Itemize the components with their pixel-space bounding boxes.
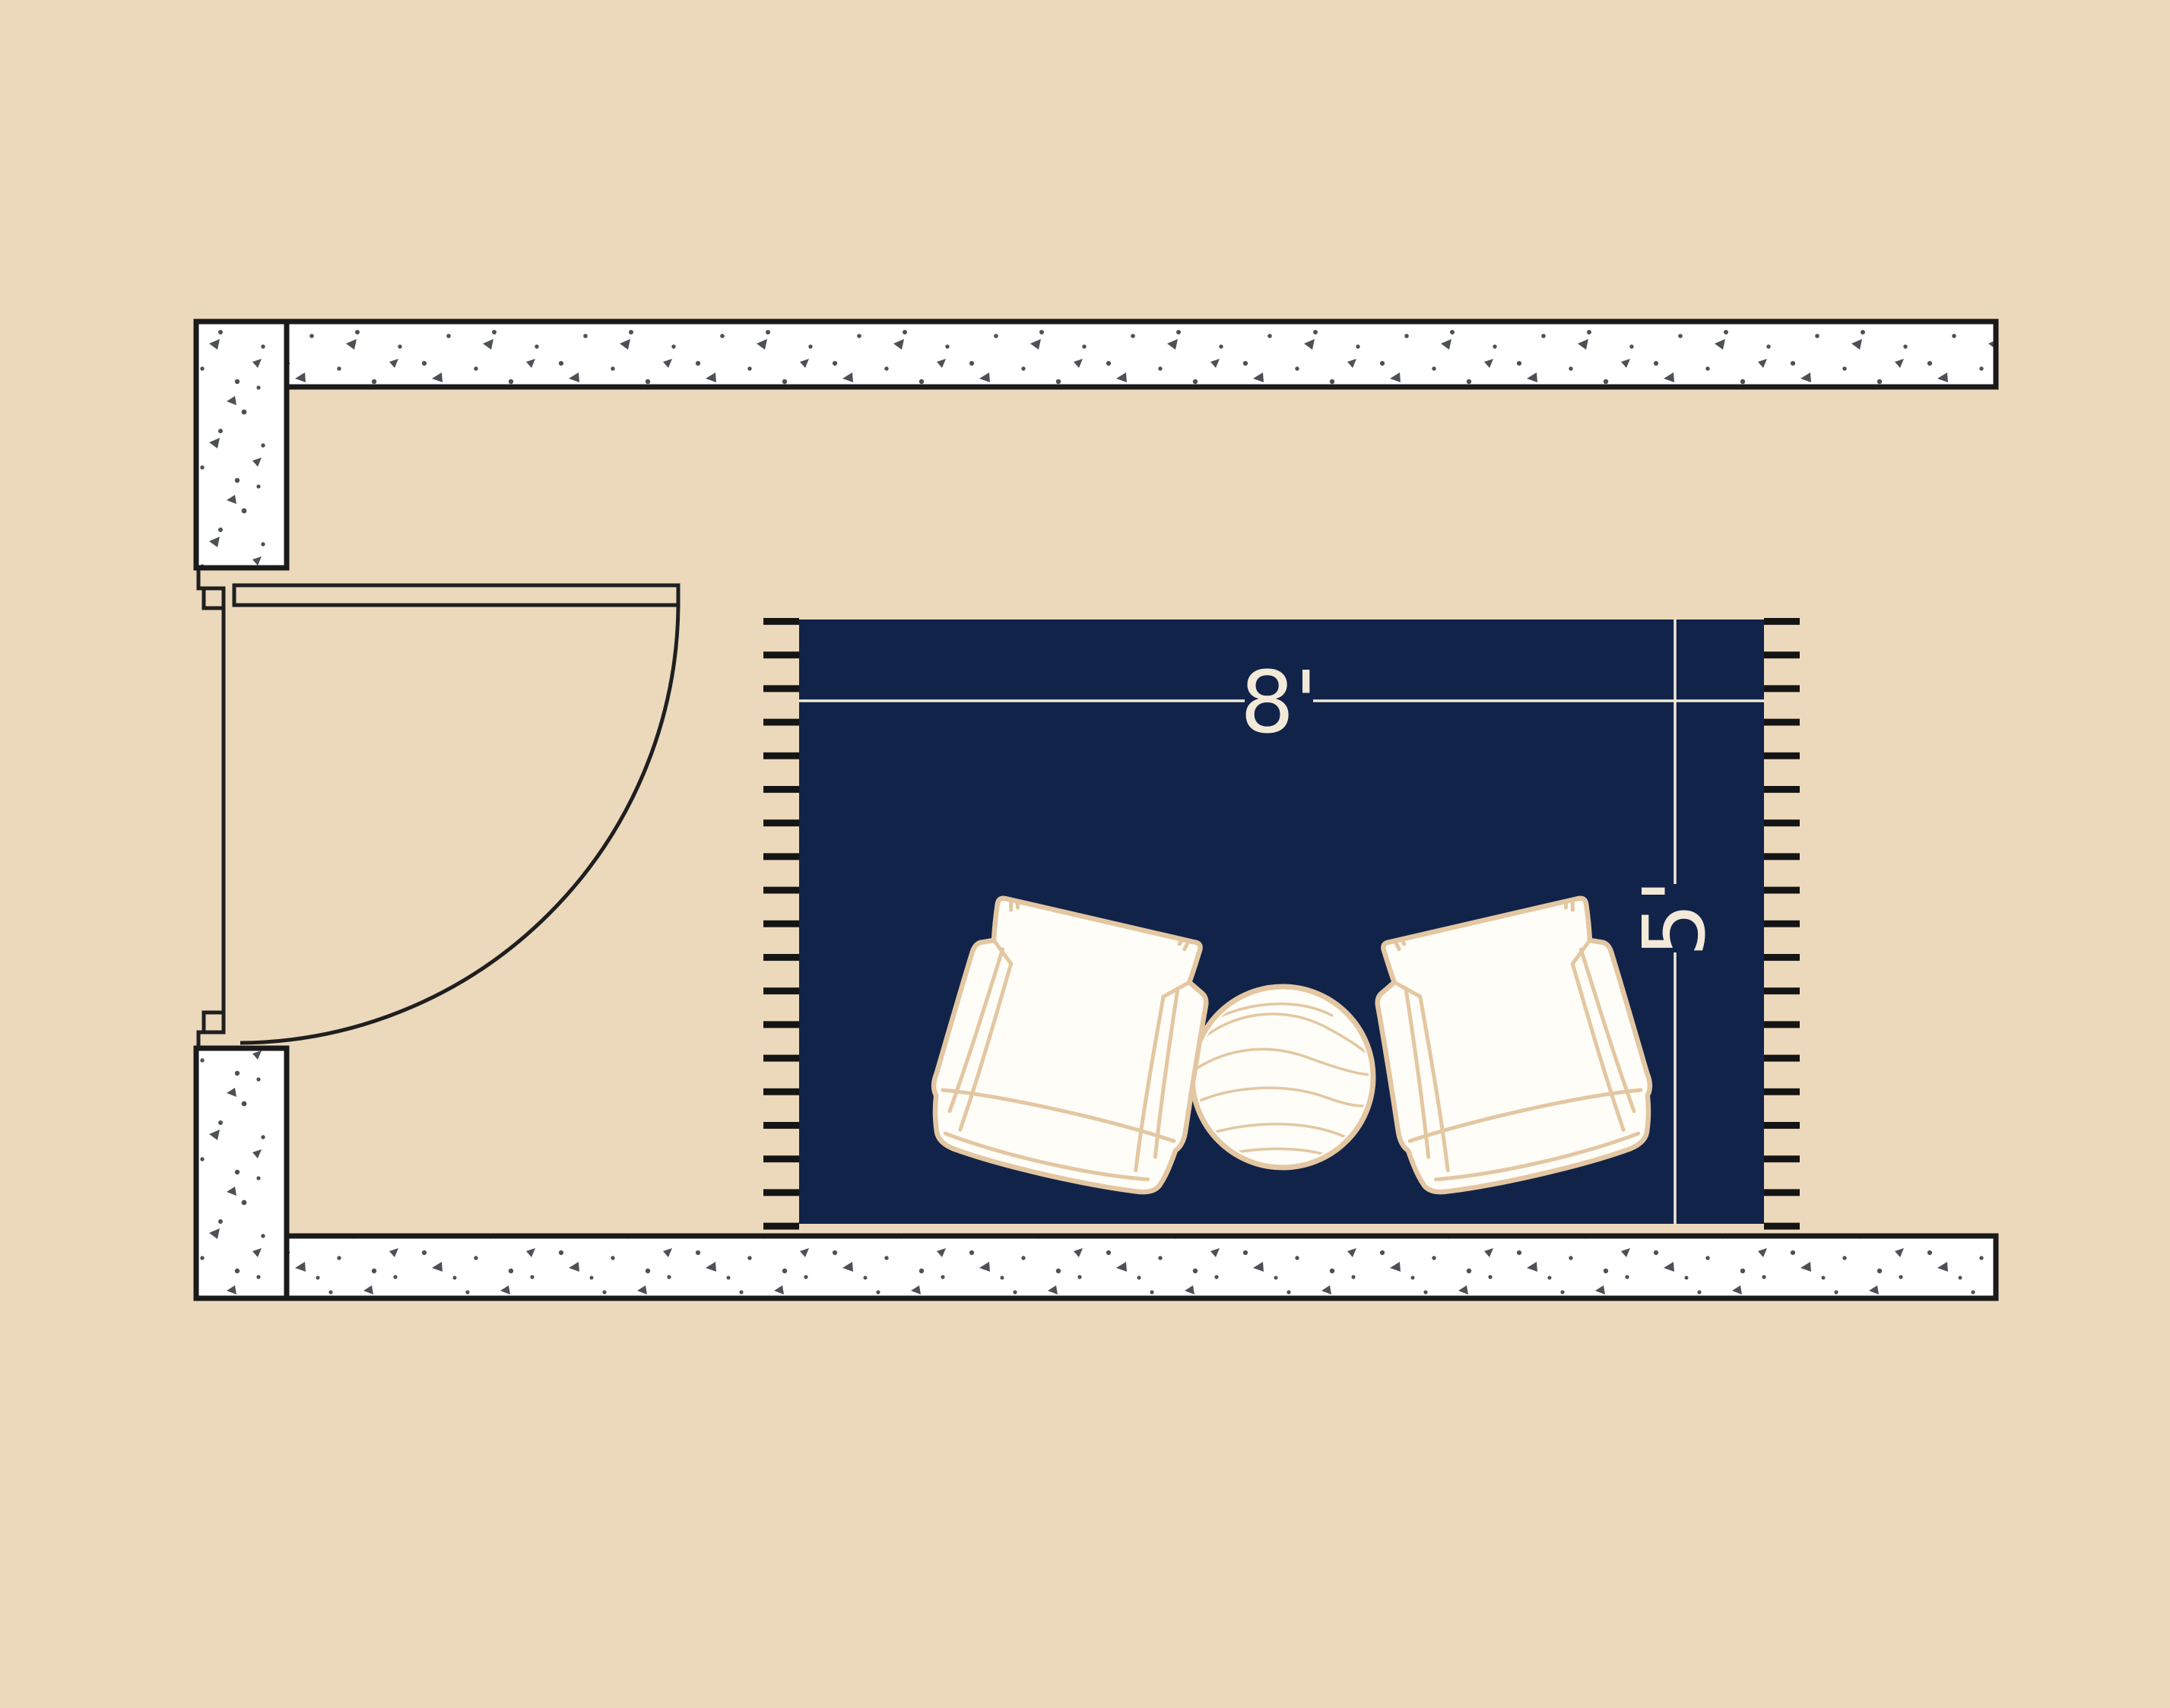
bottom-wall bbox=[196, 1236, 1996, 1298]
top-wall bbox=[196, 322, 1996, 387]
floor-plan-diagram: 8' 5' bbox=[0, 0, 2170, 1708]
rug-fringe-right bbox=[1764, 618, 1800, 1230]
rug-length-label: 5' bbox=[1626, 879, 1724, 957]
rug-fringe-left bbox=[763, 618, 799, 1230]
left-wall-lower-post bbox=[196, 1048, 287, 1298]
left-wall-upper-post bbox=[196, 322, 287, 568]
rug-width-label: 8' bbox=[1240, 654, 1318, 753]
